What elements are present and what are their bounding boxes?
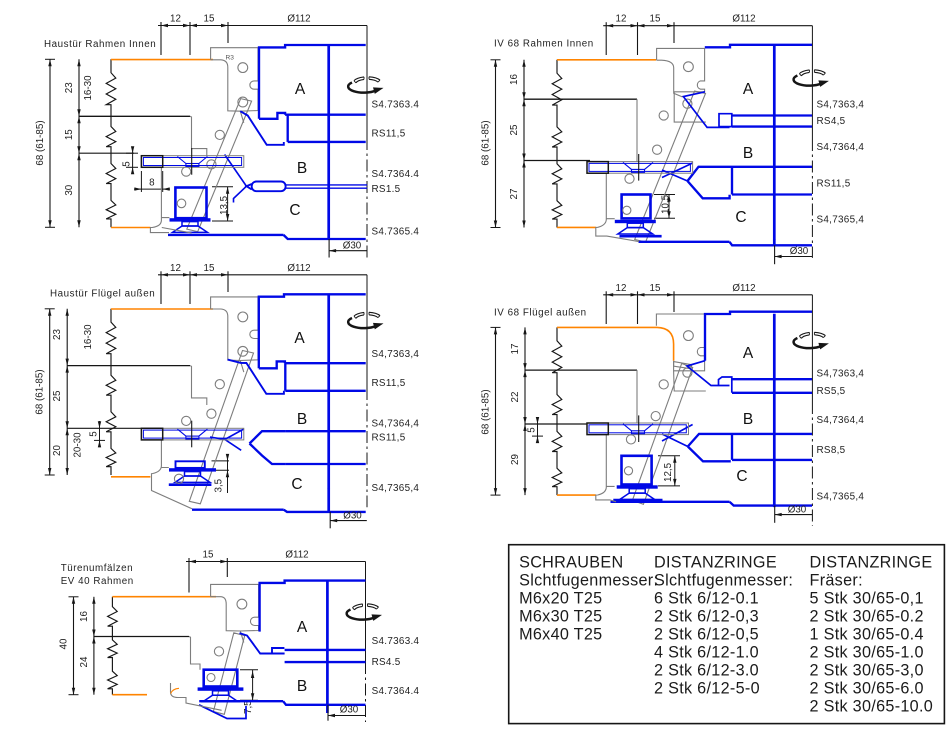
svg-text:29: 29 xyxy=(510,454,521,465)
svg-text:IV 68 Flügel außen: IV 68 Flügel außen xyxy=(494,308,587,319)
svg-text:8: 8 xyxy=(149,178,155,189)
svg-text:12: 12 xyxy=(170,263,181,274)
svg-text:4 Stk 6/12-1.0: 4 Stk 6/12-1.0 xyxy=(654,644,759,662)
svg-text:23: 23 xyxy=(64,82,75,93)
svg-text:15: 15 xyxy=(650,283,661,294)
svg-text:5: 5 xyxy=(89,431,100,437)
svg-text:M6x30 T25: M6x30 T25 xyxy=(519,607,602,625)
svg-text:R3: R3 xyxy=(226,54,235,61)
svg-text:B: B xyxy=(297,411,307,428)
svg-text:15: 15 xyxy=(203,550,214,561)
svg-text:C: C xyxy=(736,468,747,485)
svg-text:68 (61-85): 68 (61-85) xyxy=(481,389,492,434)
svg-text:16-30: 16-30 xyxy=(83,75,94,101)
svg-text:C: C xyxy=(735,209,746,226)
svg-text:Ø30: Ø30 xyxy=(340,705,359,716)
svg-text:2 Stk 30/65-6.0: 2 Stk 30/65-6.0 xyxy=(810,680,924,698)
svg-text:C: C xyxy=(291,476,302,493)
svg-text:Ø30: Ø30 xyxy=(790,246,809,257)
svg-text:15: 15 xyxy=(64,129,75,140)
svg-text:Haustür Rahmen Innen: Haustür Rahmen Innen xyxy=(44,39,156,50)
svg-text:15: 15 xyxy=(204,263,215,274)
svg-text:RS11,5: RS11,5 xyxy=(372,433,406,444)
svg-text:Ø30: Ø30 xyxy=(788,504,807,515)
svg-text:SCHRAUBEN: SCHRAUBEN xyxy=(519,553,623,571)
svg-text:22: 22 xyxy=(510,392,521,403)
svg-text:6 Stk 6/12-0.1: 6 Stk 6/12-0.1 xyxy=(654,589,759,607)
svg-text:23: 23 xyxy=(52,329,63,340)
svg-text:DISTANZRINGE: DISTANZRINGE xyxy=(654,553,777,571)
svg-text:24: 24 xyxy=(79,656,90,667)
svg-text:S4,7363,4: S4,7363,4 xyxy=(817,368,865,379)
svg-text:5: 5 xyxy=(527,427,538,433)
svg-text:2 Stk 30/65-10.0: 2 Stk 30/65-10.0 xyxy=(810,698,934,716)
svg-text:Slchtfugenmesser:: Slchtfugenmesser: xyxy=(654,571,793,589)
svg-text:12: 12 xyxy=(616,14,627,25)
svg-text:A: A xyxy=(294,330,305,347)
svg-text:68 (61-85): 68 (61-85) xyxy=(481,120,492,165)
svg-text:S4,7364,4: S4,7364,4 xyxy=(817,415,865,426)
svg-text:B: B xyxy=(297,678,307,695)
svg-text:17: 17 xyxy=(510,344,521,355)
svg-text:16-30: 16-30 xyxy=(83,324,94,350)
svg-text:M6x40 T25: M6x40 T25 xyxy=(519,626,602,644)
svg-text:Ø112: Ø112 xyxy=(287,14,310,25)
svg-text:A: A xyxy=(295,81,306,98)
svg-text:27: 27 xyxy=(509,189,520,200)
svg-text:EV 40 Rahmen: EV 40 Rahmen xyxy=(61,576,134,587)
svg-text:S4,7364,4: S4,7364,4 xyxy=(817,142,865,153)
svg-text:12,5: 12,5 xyxy=(663,462,674,482)
svg-text:S4.7363.4: S4.7363.4 xyxy=(372,636,420,647)
svg-text:Ø112: Ø112 xyxy=(732,283,755,294)
svg-text:25: 25 xyxy=(52,390,63,401)
svg-text:RS1.5: RS1.5 xyxy=(372,184,401,195)
svg-text:RS4,5: RS4,5 xyxy=(817,116,846,127)
svg-text:15: 15 xyxy=(204,14,215,25)
svg-text:S4.7364.4: S4.7364.4 xyxy=(372,686,420,697)
svg-text:S4,7363,4: S4,7363,4 xyxy=(817,100,865,111)
svg-text:12: 12 xyxy=(170,14,181,25)
svg-text:A: A xyxy=(743,81,754,98)
svg-text:16: 16 xyxy=(509,74,520,85)
svg-text:3,5: 3,5 xyxy=(214,478,225,492)
svg-text:S4.7363.4: S4.7363.4 xyxy=(372,100,420,111)
svg-text:S4.7364.4: S4.7364.4 xyxy=(372,169,420,180)
svg-text:S4,7364,4: S4,7364,4 xyxy=(372,419,420,430)
svg-text:M6x20 T25: M6x20 T25 xyxy=(519,589,602,607)
svg-text:RS8,5: RS8,5 xyxy=(817,445,846,456)
svg-text:2 Stk 30/65-3,0: 2 Stk 30/65-3,0 xyxy=(810,662,924,680)
svg-text:C: C xyxy=(289,202,300,219)
svg-text:10,5: 10,5 xyxy=(660,194,671,214)
svg-text:Haustür Flügel außen: Haustür Flügel außen xyxy=(50,289,155,300)
svg-text:A: A xyxy=(297,619,308,636)
svg-text:S4,7363,4: S4,7363,4 xyxy=(372,349,420,360)
svg-text:B: B xyxy=(743,145,753,162)
svg-text:5: 5 xyxy=(122,161,133,167)
svg-text:RS11,5: RS11,5 xyxy=(372,129,406,140)
svg-text:RS5,5: RS5,5 xyxy=(817,386,846,397)
svg-text:2 Stk 6/12-5-0: 2 Stk 6/12-5-0 xyxy=(654,680,760,698)
svg-text:S4,7365,4: S4,7365,4 xyxy=(817,492,865,503)
svg-text:2 Stk 6/12-0,5: 2 Stk 6/12-0,5 xyxy=(654,626,759,644)
svg-text:Ø112: Ø112 xyxy=(285,550,308,561)
svg-text:15: 15 xyxy=(650,14,661,25)
svg-text:RS11,5: RS11,5 xyxy=(372,378,406,389)
svg-text:5 Stk 30/65-0,1: 5 Stk 30/65-0,1 xyxy=(810,589,924,607)
svg-text:Ø112: Ø112 xyxy=(732,14,755,25)
svg-text:IV 68 Rahmen Innen: IV 68 Rahmen Innen xyxy=(494,39,594,50)
svg-text:25: 25 xyxy=(509,124,520,135)
svg-text:Ø30: Ø30 xyxy=(343,241,362,252)
svg-text:2 Stk 30/65-0.2: 2 Stk 30/65-0.2 xyxy=(810,607,924,625)
svg-text:68 (61-85): 68 (61-85) xyxy=(35,120,46,165)
svg-text:68 (61-85): 68 (61-85) xyxy=(35,369,46,414)
svg-text:Türenumfälzen: Türenumfälzen xyxy=(61,563,134,574)
svg-text:Slchtfugenmesser:: Slchtfugenmesser: xyxy=(519,571,658,589)
svg-text:30: 30 xyxy=(64,184,75,195)
svg-text:S4.7365.4: S4.7365.4 xyxy=(372,227,420,238)
svg-text:Ø112: Ø112 xyxy=(287,263,310,274)
svg-text:40: 40 xyxy=(59,638,70,649)
svg-text:2 Stk 30/65-1.0: 2 Stk 30/65-1.0 xyxy=(810,644,924,662)
svg-text:20-30: 20-30 xyxy=(73,432,84,458)
svg-text:2 Stk 6/12-3.0: 2 Stk 6/12-3.0 xyxy=(654,662,759,680)
svg-text:1 Stk 30/65-0.4: 1 Stk 30/65-0.4 xyxy=(810,626,924,644)
svg-text:2 Stk 6/12-0,3: 2 Stk 6/12-0,3 xyxy=(654,607,759,625)
svg-text:S4,7365,4: S4,7365,4 xyxy=(817,215,865,226)
svg-text:A: A xyxy=(743,345,754,362)
svg-text:Ø30: Ø30 xyxy=(343,510,362,521)
svg-text:20: 20 xyxy=(52,445,63,456)
svg-text:S4,7365,4: S4,7365,4 xyxy=(372,483,420,494)
svg-text:DISTANZRINGE: DISTANZRINGE xyxy=(810,553,933,571)
svg-text:B: B xyxy=(743,411,753,428)
svg-text:16: 16 xyxy=(79,611,90,622)
svg-text:RS4.5: RS4.5 xyxy=(372,657,401,668)
svg-text:12: 12 xyxy=(616,283,627,294)
svg-text:Fräser:: Fräser: xyxy=(810,571,863,589)
svg-text:B: B xyxy=(297,160,307,177)
svg-text:13,5: 13,5 xyxy=(219,195,230,215)
svg-text:RS11,5: RS11,5 xyxy=(817,179,851,190)
